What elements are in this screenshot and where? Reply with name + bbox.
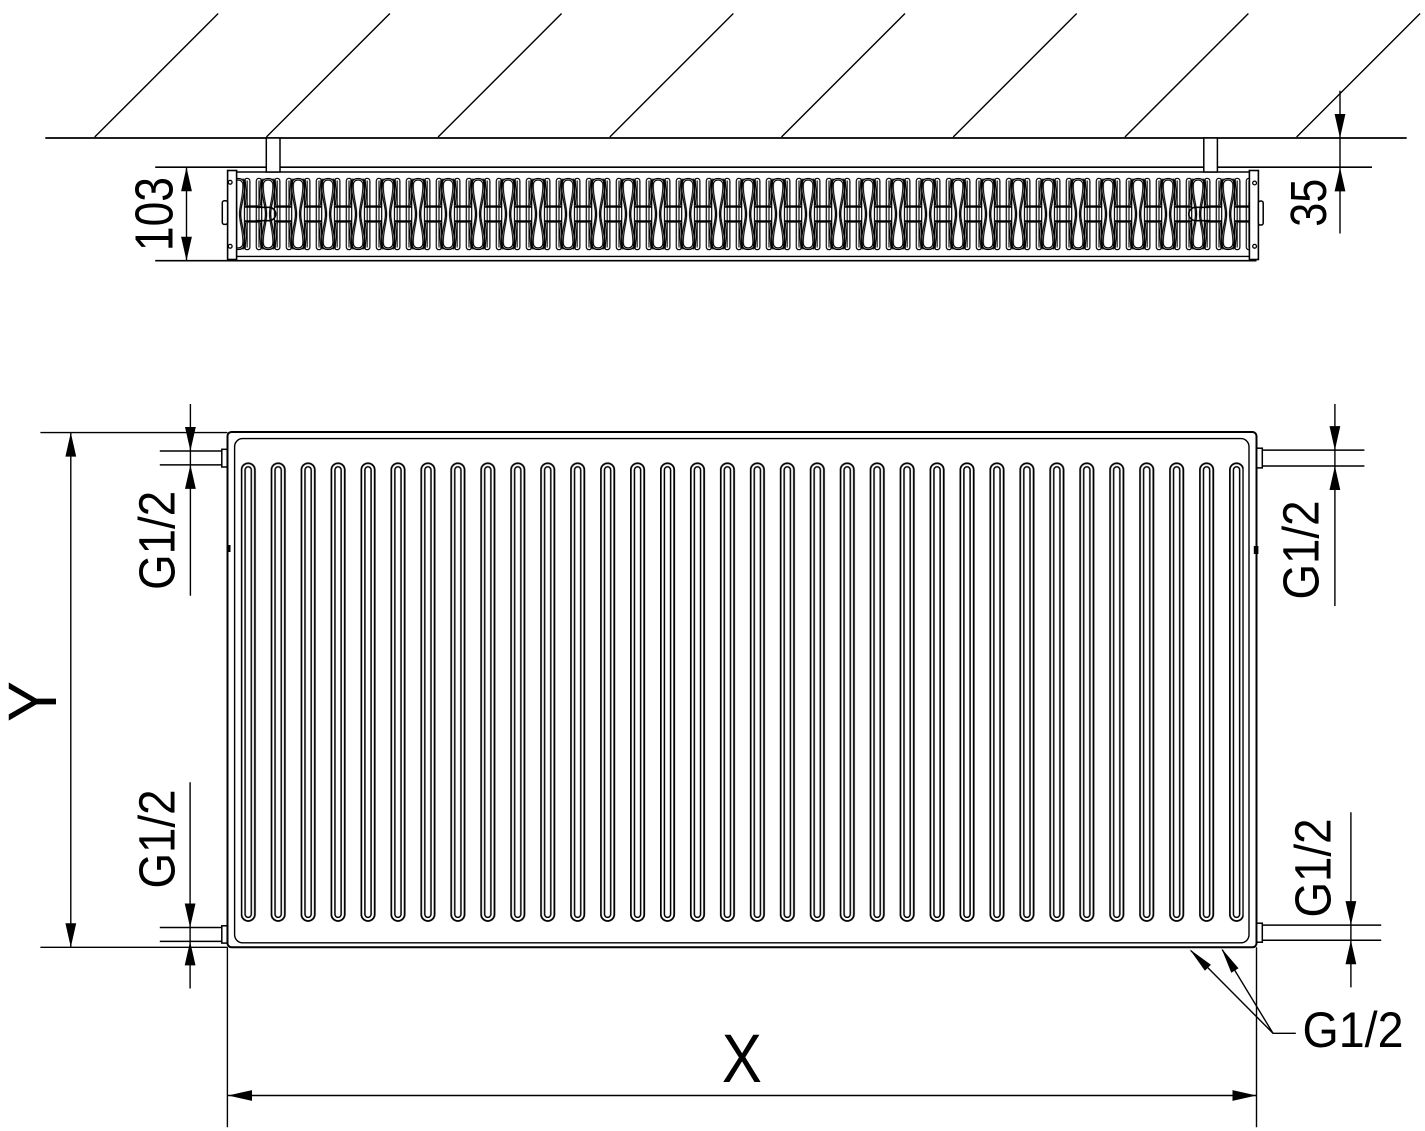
- svg-text:G1/2: G1/2: [1285, 819, 1342, 918]
- svg-text:Y: Y: [0, 681, 71, 722]
- svg-text:X: X: [722, 1020, 762, 1097]
- svg-text:G1/2: G1/2: [1273, 501, 1330, 600]
- svg-text:G1/2: G1/2: [129, 491, 186, 590]
- svg-text:G1/2: G1/2: [129, 790, 186, 889]
- svg-text:103: 103: [125, 177, 185, 251]
- svg-text:G1/2: G1/2: [1303, 1002, 1404, 1058]
- svg-text:35: 35: [1280, 179, 1337, 227]
